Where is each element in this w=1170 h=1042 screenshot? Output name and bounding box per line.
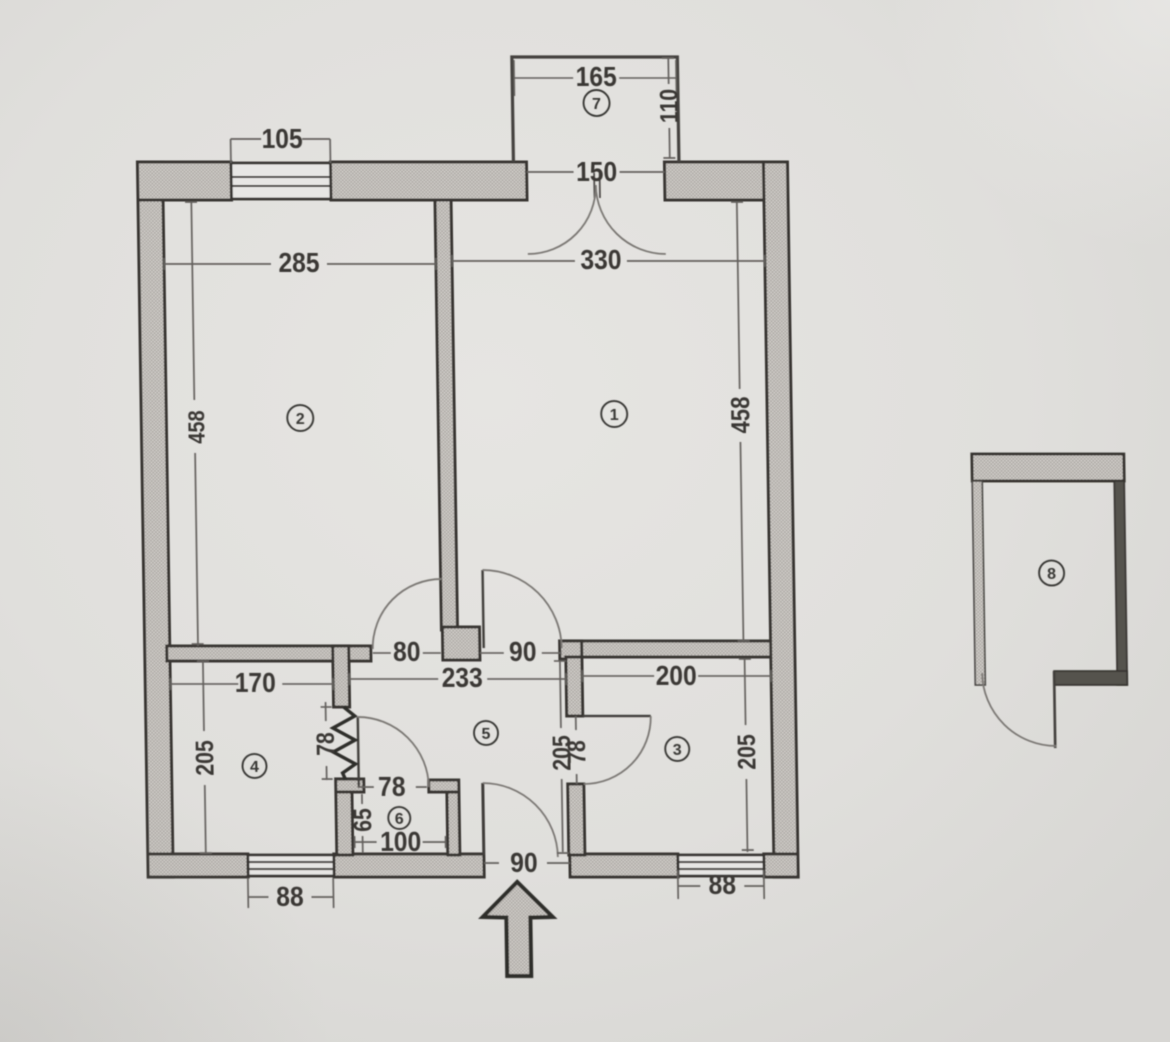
svg-text:165: 165 bbox=[575, 61, 617, 93]
svg-text:330: 330 bbox=[580, 244, 622, 276]
svg-text:150: 150 bbox=[576, 156, 618, 188]
svg-text:3: 3 bbox=[673, 742, 682, 759]
svg-text:7: 7 bbox=[592, 96, 601, 113]
svg-text:1: 1 bbox=[610, 407, 619, 424]
svg-text:88: 88 bbox=[708, 869, 736, 901]
svg-text:200: 200 bbox=[655, 660, 697, 692]
svg-text:8: 8 bbox=[1047, 566, 1056, 583]
svg-text:110: 110 bbox=[655, 89, 684, 123]
svg-text:205: 205 bbox=[732, 734, 761, 770]
svg-text:105: 105 bbox=[261, 123, 303, 155]
svg-text:458: 458 bbox=[183, 410, 210, 443]
svg-text:285: 285 bbox=[278, 247, 320, 279]
svg-text:2: 2 bbox=[296, 411, 305, 428]
